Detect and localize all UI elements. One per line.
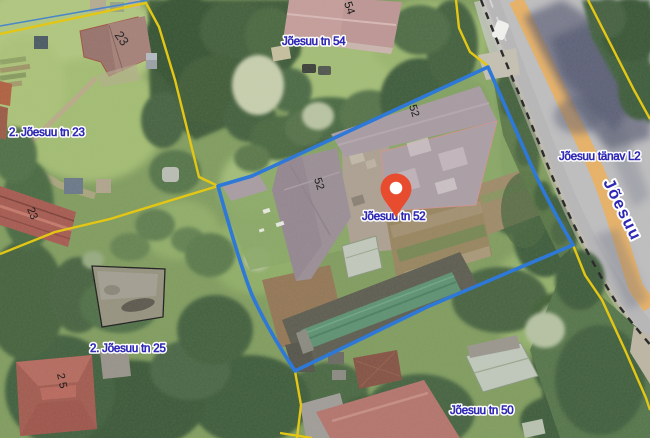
svg-text:2. Jõesuu tn 25: 2. Jõesuu tn 25 bbox=[90, 343, 166, 355]
svg-text:Jõesuu tn 54: Jõesuu tn 54 bbox=[282, 36, 346, 48]
svg-text:Jõesuu tn 50: Jõesuu tn 50 bbox=[450, 405, 513, 417]
svg-text:Jõesuu tänav L2: Jõesuu tänav L2 bbox=[559, 151, 640, 163]
svg-text:2. Jõesuu tn 23: 2. Jõesuu tn 23 bbox=[9, 127, 85, 139]
